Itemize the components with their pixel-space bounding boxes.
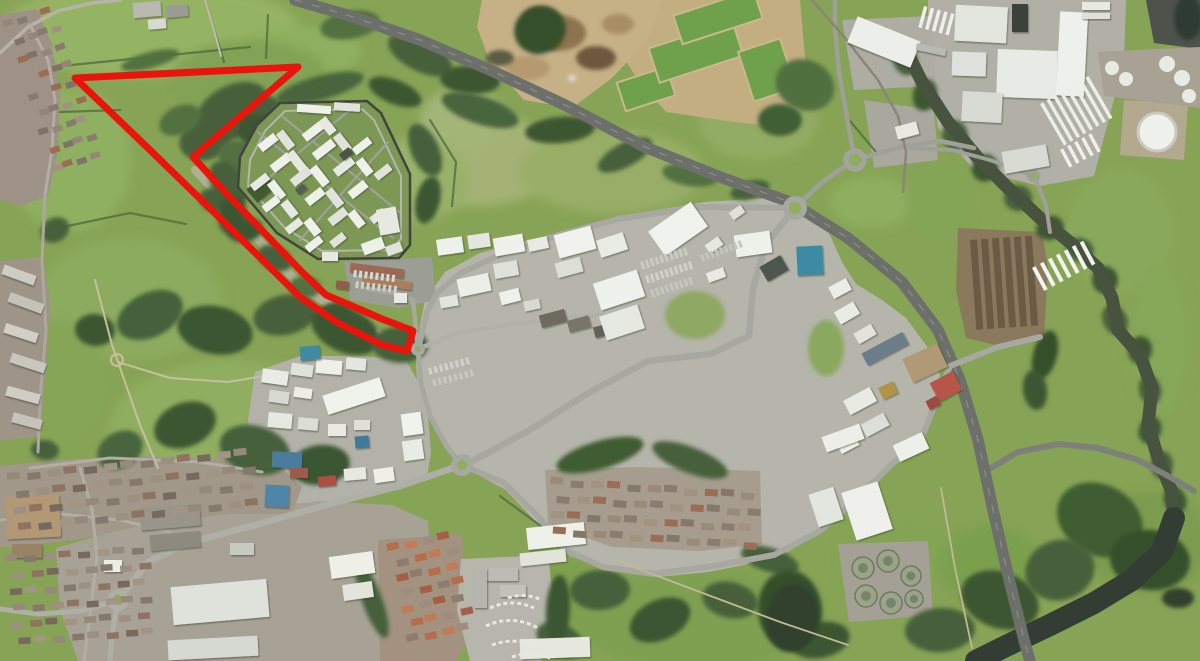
house <box>140 460 154 468</box>
house <box>634 500 647 508</box>
house <box>587 515 600 523</box>
building-92 <box>961 91 1003 123</box>
building-58 <box>401 412 424 437</box>
storage-tank-small-2 <box>1159 56 1175 72</box>
house <box>747 508 760 516</box>
house <box>25 586 37 593</box>
house <box>741 492 754 500</box>
house <box>107 632 119 639</box>
house <box>131 510 145 518</box>
house <box>664 485 677 493</box>
roundabout-4 <box>413 344 423 354</box>
quarry-heap-5 <box>486 50 514 66</box>
house <box>86 600 98 607</box>
house <box>109 478 123 486</box>
house <box>33 635 45 642</box>
building-53 <box>290 468 308 478</box>
building-96 <box>1082 13 1110 19</box>
house <box>727 508 740 516</box>
sewage-tank-core-5 <box>910 595 918 603</box>
house <box>100 564 112 571</box>
building-55 <box>355 435 370 448</box>
house <box>707 539 720 547</box>
field-patch-7 <box>830 176 914 228</box>
sewage-tank-core-2 <box>907 572 916 581</box>
building-89 <box>996 49 1058 99</box>
building-87 <box>954 5 1008 44</box>
house <box>186 472 200 480</box>
house <box>10 588 22 595</box>
storage-tank-small-1 <box>1119 72 1133 86</box>
house <box>53 636 65 643</box>
house <box>66 569 78 576</box>
house <box>217 451 231 459</box>
house <box>64 584 76 591</box>
house <box>85 566 97 573</box>
house <box>240 482 254 490</box>
house <box>183 488 197 496</box>
house <box>58 550 70 557</box>
house <box>45 617 57 624</box>
house <box>129 478 143 486</box>
house <box>73 484 87 492</box>
house <box>120 460 134 468</box>
house <box>97 549 109 556</box>
house <box>59 519 73 527</box>
house <box>86 497 100 505</box>
house <box>650 535 663 543</box>
house <box>593 496 606 504</box>
house <box>99 614 111 621</box>
house <box>229 501 243 509</box>
house <box>593 531 606 539</box>
building-46 <box>267 412 292 429</box>
building-54 <box>318 475 337 487</box>
house <box>78 551 90 558</box>
estate-green-0 <box>665 291 725 339</box>
house <box>106 598 118 605</box>
house <box>13 603 25 610</box>
house <box>680 519 693 527</box>
house <box>112 547 124 554</box>
house <box>140 597 152 604</box>
building-83 <box>166 4 189 18</box>
house <box>67 599 79 606</box>
quarry-heap-1 <box>576 46 616 70</box>
house <box>18 522 32 530</box>
house <box>93 481 107 489</box>
house <box>650 500 663 508</box>
building-95 <box>1082 2 1110 10</box>
house <box>208 504 222 512</box>
house <box>161 457 175 465</box>
house <box>197 454 211 462</box>
building-41 <box>315 359 342 375</box>
building-23 <box>796 245 823 275</box>
house <box>188 504 202 512</box>
house <box>24 555 36 562</box>
house <box>47 469 61 477</box>
roundabout-1 <box>454 457 470 473</box>
house <box>142 492 156 500</box>
house <box>104 463 118 471</box>
house <box>106 498 120 506</box>
house <box>609 530 622 538</box>
house <box>165 472 179 480</box>
house <box>74 516 88 524</box>
building-82 <box>132 1 161 18</box>
house <box>52 602 64 609</box>
house <box>118 580 130 587</box>
house <box>737 523 750 531</box>
house <box>705 489 718 497</box>
house <box>11 622 23 629</box>
house <box>613 500 626 508</box>
estate-green-1 <box>808 320 844 376</box>
prison-entrance-building-2 <box>336 280 350 290</box>
house <box>743 542 756 550</box>
house <box>723 538 736 546</box>
house <box>687 538 700 546</box>
house <box>36 487 50 495</box>
house <box>701 523 714 531</box>
building-59 <box>402 439 425 462</box>
house <box>29 503 43 511</box>
aerial-map-canvas <box>0 0 1200 661</box>
pond-1 <box>1162 588 1194 608</box>
storage-tank-small-3 <box>1174 70 1190 86</box>
house <box>72 633 84 640</box>
building-81 <box>520 637 591 659</box>
house <box>44 587 56 594</box>
prison-entrance-building-3 <box>394 293 407 303</box>
building-51 <box>272 451 303 469</box>
building-57 <box>373 467 395 484</box>
house <box>570 481 583 489</box>
building-48 <box>328 424 346 436</box>
house <box>233 448 247 456</box>
house <box>13 506 27 514</box>
house <box>98 583 110 590</box>
house <box>95 516 109 524</box>
roundabout-5 <box>1029 171 1039 181</box>
house <box>721 523 734 531</box>
house <box>84 466 98 474</box>
building-60 <box>230 543 254 555</box>
satellite-aerial-view <box>0 0 1200 661</box>
house <box>118 615 130 622</box>
house <box>577 496 590 504</box>
house <box>627 484 640 492</box>
quarry-heap-2 <box>602 14 634 34</box>
house <box>27 472 41 480</box>
house <box>220 486 234 494</box>
house <box>150 475 164 483</box>
house <box>70 500 84 508</box>
house <box>624 515 637 523</box>
house <box>121 596 133 603</box>
house <box>43 553 55 560</box>
house <box>18 637 30 644</box>
house <box>52 484 66 492</box>
house <box>63 466 77 474</box>
house <box>141 627 153 634</box>
house <box>567 511 580 519</box>
house <box>243 466 257 474</box>
sewage-tank-core-0 <box>858 563 868 573</box>
woodland-30 <box>758 104 802 136</box>
house <box>30 620 42 627</box>
house <box>126 494 140 502</box>
house <box>12 572 24 579</box>
house <box>139 562 151 569</box>
building-91 <box>952 51 987 76</box>
house <box>46 568 58 575</box>
storage-tank-small-4 <box>1182 89 1196 103</box>
building-77 <box>474 568 487 608</box>
house <box>551 511 564 519</box>
house <box>691 504 704 512</box>
house <box>32 604 44 611</box>
house <box>721 489 734 497</box>
house <box>172 507 186 515</box>
house <box>206 469 220 477</box>
house <box>630 534 643 542</box>
house <box>38 522 52 530</box>
storage-tank-large-0 <box>1138 113 1176 151</box>
building-68 <box>5 495 61 540</box>
house <box>607 481 620 489</box>
house <box>608 515 621 523</box>
house <box>163 492 177 500</box>
house <box>132 578 144 585</box>
building-52 <box>264 484 289 507</box>
house <box>176 454 190 462</box>
house <box>684 488 697 496</box>
quarry-heap-7 <box>568 75 576 81</box>
building-47 <box>298 417 319 431</box>
house <box>664 519 677 527</box>
house <box>707 504 720 512</box>
building-56 <box>344 467 367 481</box>
house <box>87 631 99 638</box>
building-42 <box>346 357 367 371</box>
roundabout-0 <box>786 199 804 217</box>
house <box>670 504 683 512</box>
house <box>556 496 569 504</box>
house <box>553 526 566 534</box>
house <box>126 629 138 636</box>
sewage-tank-core-1 <box>883 556 893 566</box>
house <box>666 534 679 542</box>
house <box>79 582 91 589</box>
house <box>84 616 96 623</box>
house <box>244 498 258 506</box>
building-49 <box>354 420 370 430</box>
house <box>152 510 166 518</box>
house <box>4 554 16 561</box>
building-84 <box>148 18 167 30</box>
building-88 <box>1012 4 1028 32</box>
storage-tank-small-0 <box>1105 61 1119 75</box>
house <box>199 486 213 494</box>
sewage-tank-core-4 <box>886 598 896 608</box>
house <box>132 548 144 555</box>
house <box>120 565 132 572</box>
prison-building-33 <box>322 252 338 261</box>
house <box>32 570 44 577</box>
house <box>550 477 563 485</box>
house <box>648 485 661 493</box>
house <box>65 618 77 625</box>
house <box>49 504 63 512</box>
house <box>222 466 236 474</box>
house <box>115 513 129 521</box>
house <box>138 612 150 619</box>
building-50 <box>299 345 320 361</box>
house <box>16 490 30 498</box>
house <box>644 519 657 527</box>
house <box>573 530 586 538</box>
roundabout-3 <box>846 151 864 169</box>
house <box>6 472 20 480</box>
house <box>591 481 604 489</box>
sewage-tank-core-3 <box>861 591 871 601</box>
